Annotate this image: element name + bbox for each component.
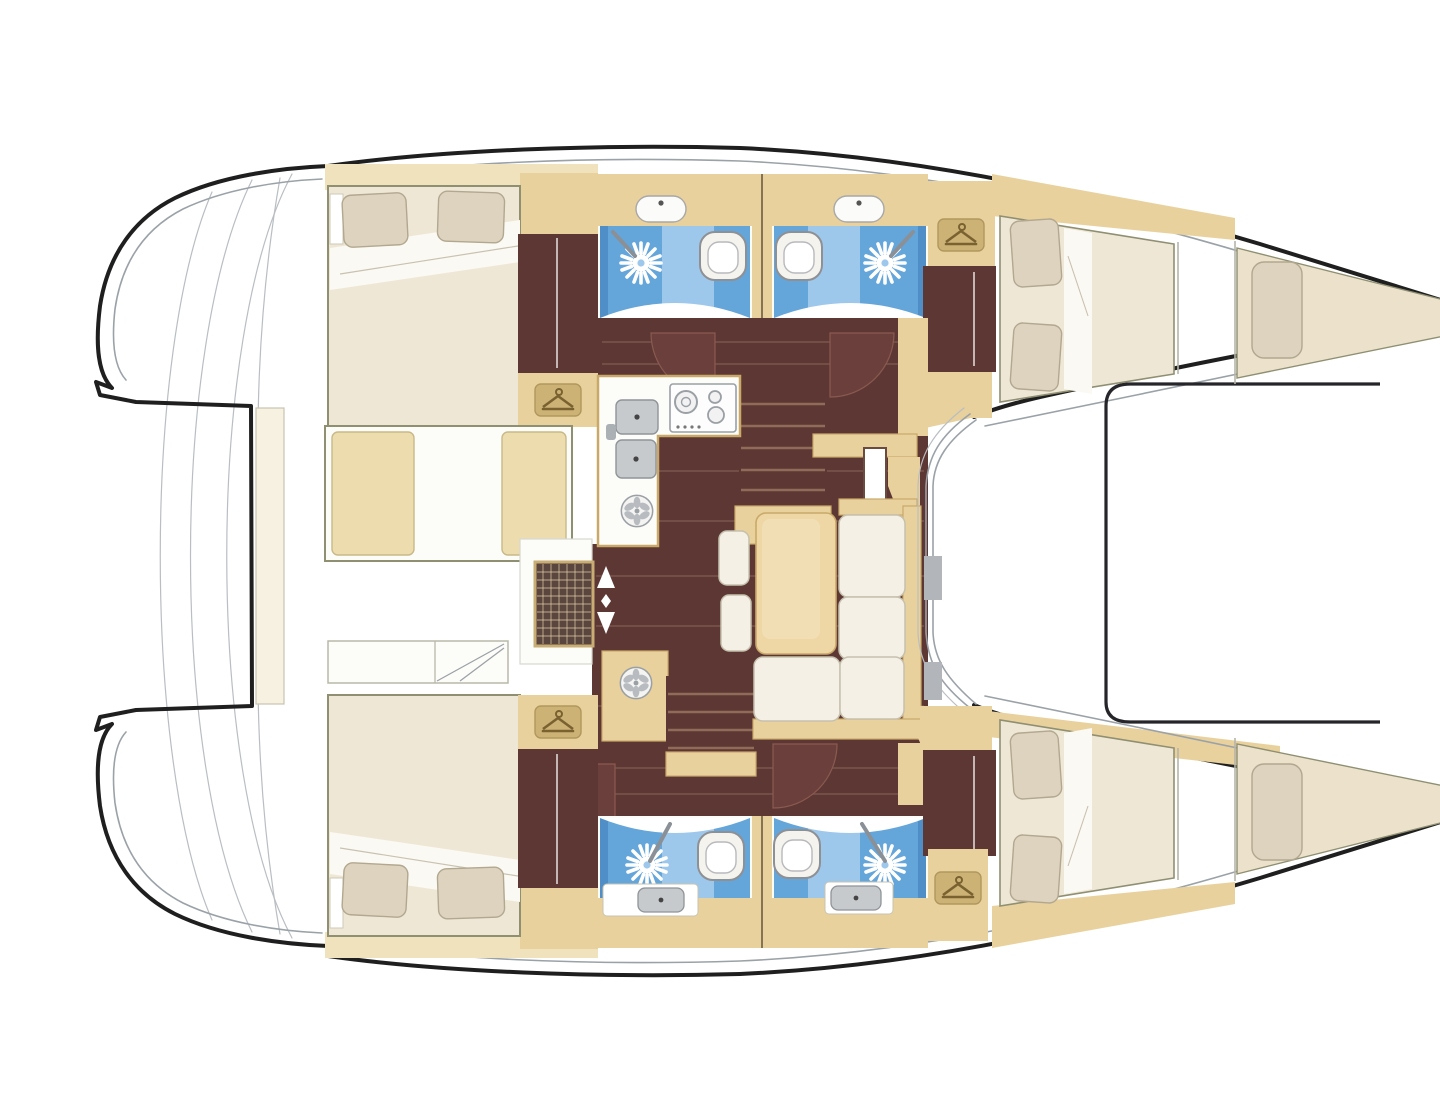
step-box bbox=[328, 641, 508, 683]
stool bbox=[719, 531, 749, 585]
sofa-cushion bbox=[839, 597, 905, 659]
sink-drain bbox=[854, 896, 859, 901]
port-fwd-cabinet bbox=[920, 372, 992, 418]
pillow bbox=[342, 192, 409, 247]
shower-icon bbox=[865, 845, 905, 885]
aft-bath-edge bbox=[600, 226, 608, 318]
berth-side-shelf bbox=[330, 878, 343, 928]
round-hatch-icon bbox=[620, 667, 651, 698]
window-mullion bbox=[924, 556, 942, 600]
pillow bbox=[437, 867, 505, 919]
hanger-icon bbox=[938, 219, 984, 251]
sink-drain bbox=[659, 898, 664, 903]
port-fwd-wardrobe bbox=[923, 266, 996, 372]
berth-side-shelf bbox=[330, 194, 343, 244]
sofa-cushion bbox=[840, 657, 904, 719]
stbd-aft-cabin bbox=[328, 695, 520, 936]
floor-plan-canvas bbox=[40, 16, 1440, 1096]
port-aft-cabinet bbox=[520, 173, 598, 234]
pillow bbox=[1252, 764, 1302, 860]
pillow bbox=[1252, 262, 1302, 358]
hanger-icon bbox=[535, 706, 581, 738]
port-forepeak bbox=[1235, 241, 1440, 384]
hanger-icon bbox=[935, 872, 981, 904]
toilet-icon bbox=[700, 232, 746, 280]
stbd-aft-cabinet bbox=[520, 888, 598, 949]
port-aft-cabin bbox=[328, 186, 520, 427]
stool bbox=[721, 595, 751, 651]
sink-drain bbox=[634, 414, 639, 419]
stbd-forepeak bbox=[1235, 738, 1440, 881]
sink-drain bbox=[633, 456, 638, 461]
trampoline-frame bbox=[1106, 384, 1380, 722]
seat-cushion bbox=[332, 432, 414, 555]
starboard-companionway bbox=[666, 676, 756, 776]
stbd-fwd-cabinet bbox=[920, 706, 992, 750]
seat-cushion bbox=[502, 432, 566, 555]
salon-side-cabinet-top bbox=[898, 318, 928, 436]
hanger-icon bbox=[535, 384, 581, 416]
stbd-fwd-wardrobe bbox=[923, 750, 996, 856]
bed-sheet bbox=[1064, 728, 1092, 894]
stair-landing bbox=[666, 752, 756, 776]
stbd-aft-wardrobe bbox=[518, 749, 598, 888]
sofa-cushion bbox=[839, 515, 905, 597]
vent-grate-icon bbox=[535, 562, 593, 646]
washbasin-icon bbox=[636, 196, 686, 222]
port-forward-cabin bbox=[992, 174, 1235, 402]
toilet-icon bbox=[774, 830, 820, 878]
stern-platform bbox=[96, 166, 328, 946]
toilet-icon bbox=[776, 232, 822, 280]
hob-icon bbox=[670, 384, 736, 432]
port-aft-wardrobe bbox=[518, 234, 598, 373]
pillow bbox=[1010, 322, 1062, 391]
shower-icon bbox=[627, 845, 667, 885]
table-sheen bbox=[762, 519, 820, 639]
window-mullion bbox=[924, 662, 942, 700]
round-hatch-icon bbox=[621, 495, 652, 526]
pillow bbox=[342, 862, 409, 917]
floor-plan-figure bbox=[40, 16, 1440, 1096]
stern-outline bbox=[96, 166, 328, 946]
pillow bbox=[1010, 730, 1062, 799]
sofa-back-bottom bbox=[753, 719, 921, 739]
pillow bbox=[1010, 218, 1062, 287]
washbasin-icon bbox=[834, 196, 884, 222]
pillow bbox=[1010, 834, 1062, 903]
faucet bbox=[606, 424, 616, 440]
aft-crossbeam-walkway bbox=[256, 408, 284, 704]
bed-sheet bbox=[1064, 228, 1092, 394]
sofa-cushion bbox=[754, 657, 840, 721]
starboard-bathrooms bbox=[598, 816, 928, 948]
pillow bbox=[437, 191, 505, 243]
toilet-icon bbox=[698, 832, 744, 880]
port-bathrooms bbox=[598, 174, 928, 318]
